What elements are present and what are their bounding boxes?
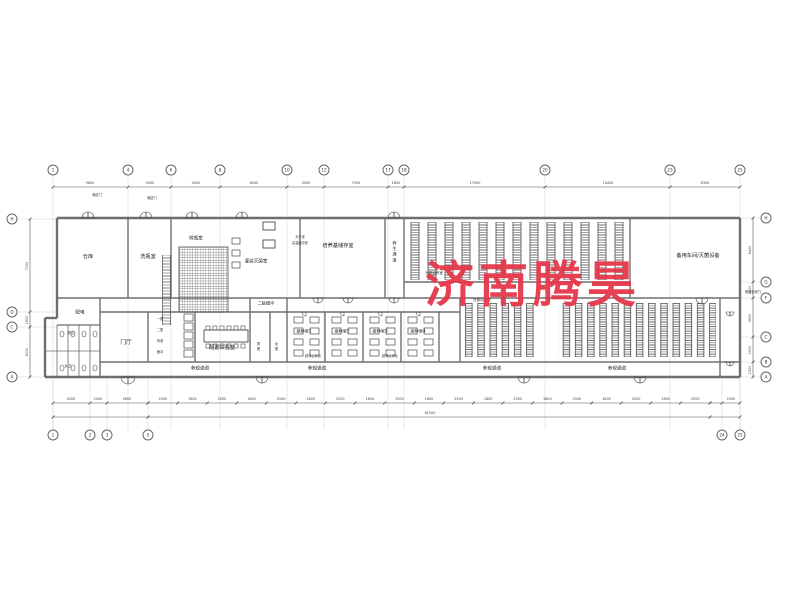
- corridor-label-visitor-3: 参观通道: [483, 366, 501, 371]
- plan-line: [348, 339, 357, 345]
- plan-line: [408, 317, 417, 323]
- dimension-text: 1800: [188, 397, 197, 401]
- axis-top-10: 10: [282, 165, 293, 176]
- plan-line: [424, 350, 433, 356]
- axis-right-A: A: [761, 372, 772, 383]
- plan-line: [294, 350, 303, 356]
- plan-line: [206, 326, 210, 330]
- plan-line: [184, 341, 193, 348]
- note-air-shower: 风淋: [157, 340, 163, 344]
- dimension-text: 2500: [513, 397, 522, 401]
- axis-top-20: 20: [540, 165, 551, 176]
- plan-line: [370, 339, 379, 345]
- dimension-text: 1800: [392, 181, 401, 185]
- dimension-text: 8000: [250, 181, 259, 185]
- plan-line: [386, 339, 395, 345]
- axis-left-D: D: [7, 307, 18, 318]
- toilet-fixture: [60, 331, 64, 337]
- axis-bottom-2: 2: [85, 430, 96, 441]
- dimension-text: 17500: [470, 181, 481, 185]
- note-hot-buffer-room: 高温缓冲室: [292, 242, 308, 246]
- room-label-inoculation-1: 接种室1: [296, 330, 311, 335]
- plan-line: [184, 350, 193, 357]
- axis-top-8: 8: [215, 165, 226, 176]
- toilet-fixture: [60, 365, 64, 371]
- plan-line: [348, 350, 357, 356]
- plan-line: [370, 350, 379, 356]
- axis-top-12: 12: [319, 165, 330, 176]
- dimension-text: 6000: [25, 348, 29, 357]
- axis-right-C: C: [761, 332, 772, 343]
- door-symbol: [343, 298, 348, 303]
- plan-line: [332, 350, 341, 356]
- dimension-text: 14400: [603, 181, 614, 185]
- room-label-medium-storage: 培养基储存室: [322, 244, 353, 250]
- dimension-text: 2500: [727, 397, 736, 401]
- dimension-text: 1500: [748, 366, 752, 375]
- dimension-text: 8300: [701, 181, 710, 185]
- room-label-inoculation-3: 接种室3: [372, 330, 387, 335]
- dimension-text: 1800: [425, 397, 434, 401]
- floor-plan-sheet: 仓库 洗瓶室 晾瓶室 灌装灭菌室 培养基储存室 养生通道 光照培养室 光照培养室…: [0, 0, 800, 600]
- dimension-text: 1800: [748, 286, 752, 295]
- room-label-men-changing: 男更: [257, 342, 261, 352]
- dimension-text: 1800: [25, 316, 29, 325]
- dimension-text: 2500: [691, 397, 700, 401]
- dimension-text: 4000: [192, 181, 201, 185]
- plan-line: [348, 317, 357, 323]
- dimension-text: 1800: [543, 397, 552, 401]
- room-label-women-changing: 女更: [275, 342, 279, 352]
- dimension-text: 9800: [86, 181, 95, 185]
- dimension-text: 5000: [146, 181, 155, 185]
- floor-plan-canvas: [0, 0, 800, 600]
- note-change-2: 二更: [157, 329, 163, 333]
- axis-right-H: H: [761, 213, 772, 224]
- room-label-curing-corridor: 养生通道: [392, 241, 397, 264]
- note-conveying-door-1: 输送门: [92, 194, 102, 198]
- dimension-text: 1800: [602, 397, 611, 401]
- plan-line: [227, 326, 231, 330]
- dimension-text: 2500: [748, 346, 752, 355]
- axis-bottom-24: 24: [717, 430, 728, 441]
- plan-line: [370, 317, 379, 323]
- plan-line: [241, 344, 245, 348]
- door-symbol: [389, 298, 394, 303]
- plan-line: [424, 317, 433, 323]
- door-symbol: [313, 298, 318, 303]
- dimension-text: 6400: [748, 246, 752, 255]
- plan-line: [213, 326, 217, 330]
- dimension-text: 7500: [352, 181, 361, 185]
- axis-top-25: 25: [735, 165, 746, 176]
- dimension-text: 2500: [336, 397, 345, 401]
- axis-bottom-5: 5: [143, 430, 154, 441]
- dimension-text: 2500: [632, 397, 641, 401]
- note-change-1: 一更: [157, 318, 163, 322]
- door-symbol: [318, 298, 323, 303]
- plan-line: [408, 350, 417, 356]
- bottle-rack: [162, 255, 171, 325]
- note-clean-bench-1: 超净工作台: [305, 355, 321, 359]
- plan-line: [408, 339, 417, 345]
- dimension-text: 2500: [573, 397, 582, 401]
- plan-line: [386, 317, 395, 323]
- dimension-text: 2500: [277, 397, 286, 401]
- room-label-inoculation-2: 接种室2: [334, 330, 349, 335]
- watermark-text: 济南腾昊: [425, 246, 641, 317]
- note-buffer: 缓冲: [157, 351, 163, 355]
- plan-line: [310, 339, 319, 345]
- plan-line: [184, 332, 193, 339]
- plan-line: [294, 339, 303, 345]
- dimension-text: 1800: [306, 397, 315, 401]
- dimension-text: 2500: [158, 397, 167, 401]
- door-symbol: [348, 298, 353, 303]
- plan-line: [184, 314, 193, 321]
- dimension-text: 4500: [302, 181, 311, 185]
- axis-top-23: 23: [665, 165, 676, 176]
- dimension-text: 2000: [94, 397, 103, 401]
- axis-left-A: A: [7, 372, 18, 383]
- dimension-text: 4300: [67, 397, 76, 401]
- dimension-text: 7200: [25, 262, 29, 271]
- note-conveying-door-2: 输送门: [147, 197, 157, 201]
- toilet-fixture: [71, 365, 75, 371]
- toilet-fixture: [93, 365, 97, 371]
- room-label-filling-sterilizing: 灌装灭菌室: [245, 259, 268, 264]
- room-label-secondary-buffer: 二级缓冲: [258, 302, 275, 307]
- axis-top-1: 1: [48, 165, 59, 176]
- dimension-text: 2500: [454, 397, 463, 401]
- room-label-women-toilet: 女卫: [64, 364, 71, 368]
- door-symbol: [730, 312, 734, 316]
- plan-line: [294, 317, 303, 323]
- plan-line: [310, 317, 319, 323]
- corridor-label-visitor-2: 参观通道: [308, 366, 326, 371]
- toilet-fixture: [93, 331, 97, 337]
- dimension-text: 2500: [218, 397, 227, 401]
- door-symbol: [394, 298, 399, 303]
- axis-bottom-25: 25: [735, 430, 746, 441]
- toilet-fixture: [82, 365, 86, 371]
- note-clean-bench-2: 超净工作台: [382, 355, 398, 359]
- room-label-power-dist: 配电: [75, 310, 84, 315]
- note-balance-room: 天平室: [295, 236, 305, 240]
- drying-room-hatch: [179, 247, 228, 312]
- dimension-text: 61500: [425, 411, 436, 415]
- corridor-label-visitor-4: 参观通道: [608, 366, 626, 371]
- plan-line: [232, 262, 240, 268]
- axis-left-H: H: [7, 214, 18, 225]
- plan-line: [232, 250, 240, 256]
- dimension-text: 1800: [366, 397, 375, 401]
- axis-top-17: 17: [383, 165, 394, 176]
- axis-right-G: G: [761, 277, 772, 288]
- dimension-text: 2500: [395, 397, 404, 401]
- axis-right-F: F: [761, 293, 772, 304]
- toilet-fixture: [82, 331, 86, 337]
- room-label-prep-lab: 配置实验室: [209, 346, 235, 352]
- plan-line: [204, 330, 248, 342]
- plan-line: [263, 240, 275, 248]
- room-label-men-toilet: 男卫: [67, 331, 74, 335]
- door-symbol: [726, 312, 730, 316]
- dimension-text: 1800: [247, 397, 256, 401]
- room-label-warehouse: 仓库: [83, 255, 93, 261]
- axis-top-4: 4: [123, 165, 134, 176]
- room-label-inoculation-4: 接种室4: [410, 330, 425, 335]
- axis-right-B: B: [761, 357, 772, 368]
- dimension-text: 1800: [661, 397, 670, 401]
- axis-top-18: 18: [399, 165, 410, 176]
- plan-line: [232, 238, 240, 244]
- plan-line: [241, 326, 245, 330]
- corridor-label-visitor-1: 参观通道: [191, 366, 209, 371]
- plan-line: [424, 339, 433, 345]
- axis-bottom-3: 3: [102, 430, 113, 441]
- room-label-entrance-hall: 门厅: [120, 340, 131, 346]
- plan-line: [263, 222, 275, 230]
- room-label-spare-workshop: 备用车间/灭菌设备: [676, 254, 719, 260]
- axis-top-6: 6: [166, 165, 177, 176]
- dimension-text: 3900: [748, 314, 752, 323]
- plan-line: [234, 326, 238, 330]
- plan-line: [332, 317, 341, 323]
- dimension-text: 5600: [123, 397, 132, 401]
- room-label-bottle-washing: 洗瓶室: [140, 255, 156, 261]
- room-label-bottle-drying: 晾瓶室: [189, 236, 203, 241]
- plan-line: [220, 326, 224, 330]
- axis-left-C: C: [7, 322, 18, 333]
- plan-line: [184, 323, 193, 330]
- axis-bottom-1: 1: [48, 430, 59, 441]
- dimension-text: 1800: [484, 397, 493, 401]
- plan-line: [332, 339, 341, 345]
